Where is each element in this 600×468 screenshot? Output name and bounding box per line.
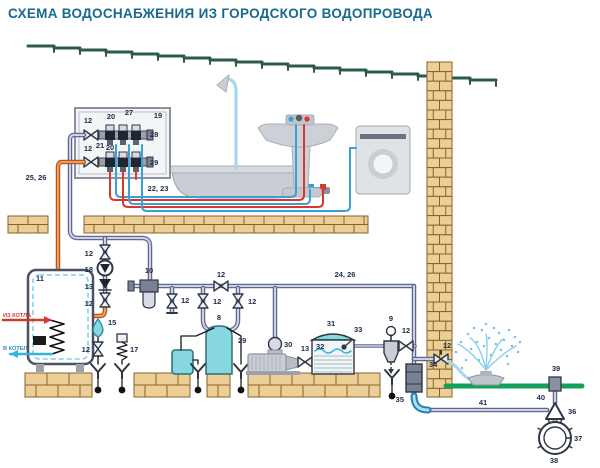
label-drain-tap-main: 12 (181, 296, 189, 305)
label-well-head: 39 (552, 364, 560, 373)
label-valve-after-filter: 12 (402, 326, 410, 335)
label-fine-filter: 9 (389, 314, 393, 323)
label-check-valve-column: 13 (85, 282, 93, 291)
label-accumulator-tank: 31 (327, 319, 335, 328)
label-manifold-fitting: 21 (96, 141, 104, 150)
boiler-drains (91, 334, 129, 393)
diagram-canvas: СХЕМА ВОДОСНАБЖЕНИЯ ИЗ ГОРОДСКОГО ВОДОПР… (0, 0, 600, 468)
label-main-supply-line: 24, 26 (335, 270, 356, 279)
label-manifold-hot-outlet: 20 (106, 143, 114, 152)
label-well-riser: 40 (537, 393, 545, 402)
label-garden-tap: 12 (443, 341, 451, 350)
label-well: 38 (550, 456, 558, 465)
label-manifold-cold: 27 (125, 108, 133, 117)
label-manifold-cold-end: 28 (150, 130, 158, 139)
label-outdoor-elbow: 35 (396, 395, 404, 404)
label-expansion-tank: 15 (108, 318, 116, 327)
label-valve-column-bottom: 12 (85, 299, 93, 308)
label-check-valve-pump: 13 (301, 344, 309, 353)
foundation-bricks (25, 373, 380, 397)
page-title: СХЕМА ВОДОСНАБЖЕНИЯ ИЗ ГОРОДСКОГО ВОДОПР… (8, 6, 433, 21)
label-from-heating-boiler: ИЗ КОТЛА (3, 313, 31, 319)
label-valve-main-line: 12 (217, 270, 225, 279)
label-pump-fitting: 30 (284, 340, 292, 349)
label-to-heating-boiler: В КОТЕЛ (3, 346, 28, 352)
label-storage-boiler: 11 (36, 274, 44, 283)
washing-machine (356, 126, 410, 194)
water-supply-diagram: СХЕМА ВОДОСНАБЖЕНИЯ ИЗ ГОРОДСКОГО ВОДОПР… (0, 0, 600, 468)
label-manifold-cabinet: 19 (154, 111, 162, 120)
label-boiler-drain-valve: 12 (82, 345, 90, 354)
label-boiler-riser-pipes: 25, 26 (26, 173, 47, 182)
label-circulation-pump: 18 (85, 265, 93, 274)
shower-riser (217, 75, 236, 168)
label-float-valve: 33 (354, 325, 362, 334)
label-valve-softener-left: 12 (213, 297, 221, 306)
label-valve-softener-right: 12 (248, 297, 256, 306)
floor-bricks (8, 216, 368, 233)
label-water-softener: 8 (217, 313, 221, 322)
label-buried-supply-pipe: 41 (479, 398, 487, 407)
label-pump-station-pump: 29 (238, 336, 246, 345)
label-well-casing: 37 (574, 434, 582, 443)
label-valve-column-top: 12 (85, 249, 93, 258)
boiler (3, 270, 93, 372)
label-foundation-sleeve: 34 (429, 360, 438, 369)
label-fixture-supply-lines: 22, 23 (148, 184, 169, 193)
main-filter-10 (128, 280, 158, 308)
roof (28, 46, 496, 86)
label-safety-valve: 17 (130, 345, 138, 354)
label-check-valve-well: 36 (568, 407, 576, 416)
pump-station (246, 334, 354, 375)
label-manifold-hot-end: 29 (150, 158, 158, 167)
label-valve-manifold-cold: 12 (84, 116, 92, 125)
label-tank-water: 32 (316, 342, 324, 351)
label-valve-manifold-hot: 12 (84, 144, 92, 153)
label-main-filter: 10 (145, 266, 153, 275)
label-manifold-cold-outlet: 20 (107, 112, 115, 121)
